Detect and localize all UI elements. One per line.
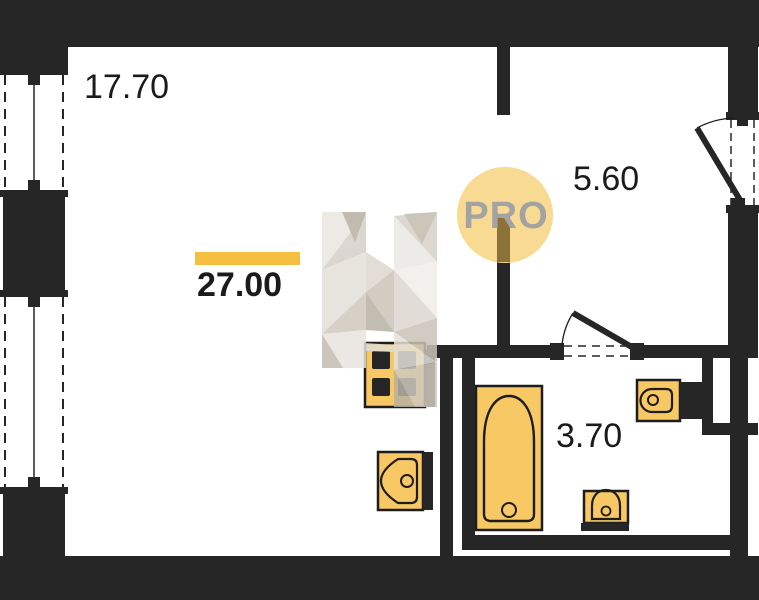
washbasin-counter: [680, 382, 702, 419]
window-sill: [0, 190, 68, 197]
entry-door-frame-block-top: [737, 119, 748, 126]
bathroom-door-swing-arc: [562, 313, 573, 345]
window-sill: [0, 290, 68, 297]
bathroom-door-jamb-left: [550, 343, 564, 360]
wall-bottom: [0, 556, 759, 600]
wall-right-middle: [728, 213, 758, 358]
stove-burner: [372, 378, 390, 396]
living-room-area-label: 17.70: [84, 70, 169, 104]
window-sill: [0, 68, 68, 75]
washbasin: [637, 380, 702, 421]
window-left-upper: [5, 75, 63, 190]
sink-counter-edge: [423, 452, 433, 510]
kitchen-sink: [378, 452, 433, 510]
bathtub: [476, 386, 542, 530]
wall-bathroom-north-right: [644, 345, 730, 358]
wall-bathroom-north-left: [427, 345, 550, 358]
wall-left-pier: [3, 197, 65, 290]
window-cap: [28, 75, 40, 85]
pro-watermark-text: PRO: [462, 197, 550, 235]
bathroom-area-label: 3.70: [556, 419, 622, 453]
bathroom-door: [562, 313, 637, 356]
wall-right-lower: [730, 358, 748, 556]
wall-bathroom-west: [462, 358, 475, 535]
entry-door-jamb-bottom: [726, 205, 759, 213]
bathroom-door-leaf: [573, 313, 637, 350]
window-left-lower: [5, 297, 63, 487]
wall-top-left-block: [0, 0, 68, 68]
window-cap: [28, 297, 40, 307]
stove-burner: [372, 351, 390, 369]
wall-left-bottom-block: [3, 494, 65, 556]
window-sill: [0, 487, 68, 494]
wall-duct-stub: [702, 358, 713, 423]
hallway-area-label: 5.60: [573, 162, 639, 196]
wall-top: [0, 0, 759, 47]
window-cap: [28, 180, 40, 190]
total-area-underline: [195, 252, 300, 265]
wall-right-top: [728, 47, 758, 112]
entry-door-leaf: [697, 128, 740, 200]
doors: [562, 118, 754, 356]
wall-bathroom-south: [462, 535, 748, 550]
toilet: [581, 490, 629, 531]
floor-plan-canvas: 17.70 27.00 5.60 3.70 PRO: [0, 0, 759, 600]
toilet-base: [581, 523, 629, 531]
window-cap: [28, 477, 40, 487]
wall-hall-divider-upper: [497, 47, 510, 115]
wall-kitchen-east: [440, 358, 453, 556]
entry-door: [697, 118, 754, 205]
total-area-label: 27.00: [197, 268, 282, 302]
